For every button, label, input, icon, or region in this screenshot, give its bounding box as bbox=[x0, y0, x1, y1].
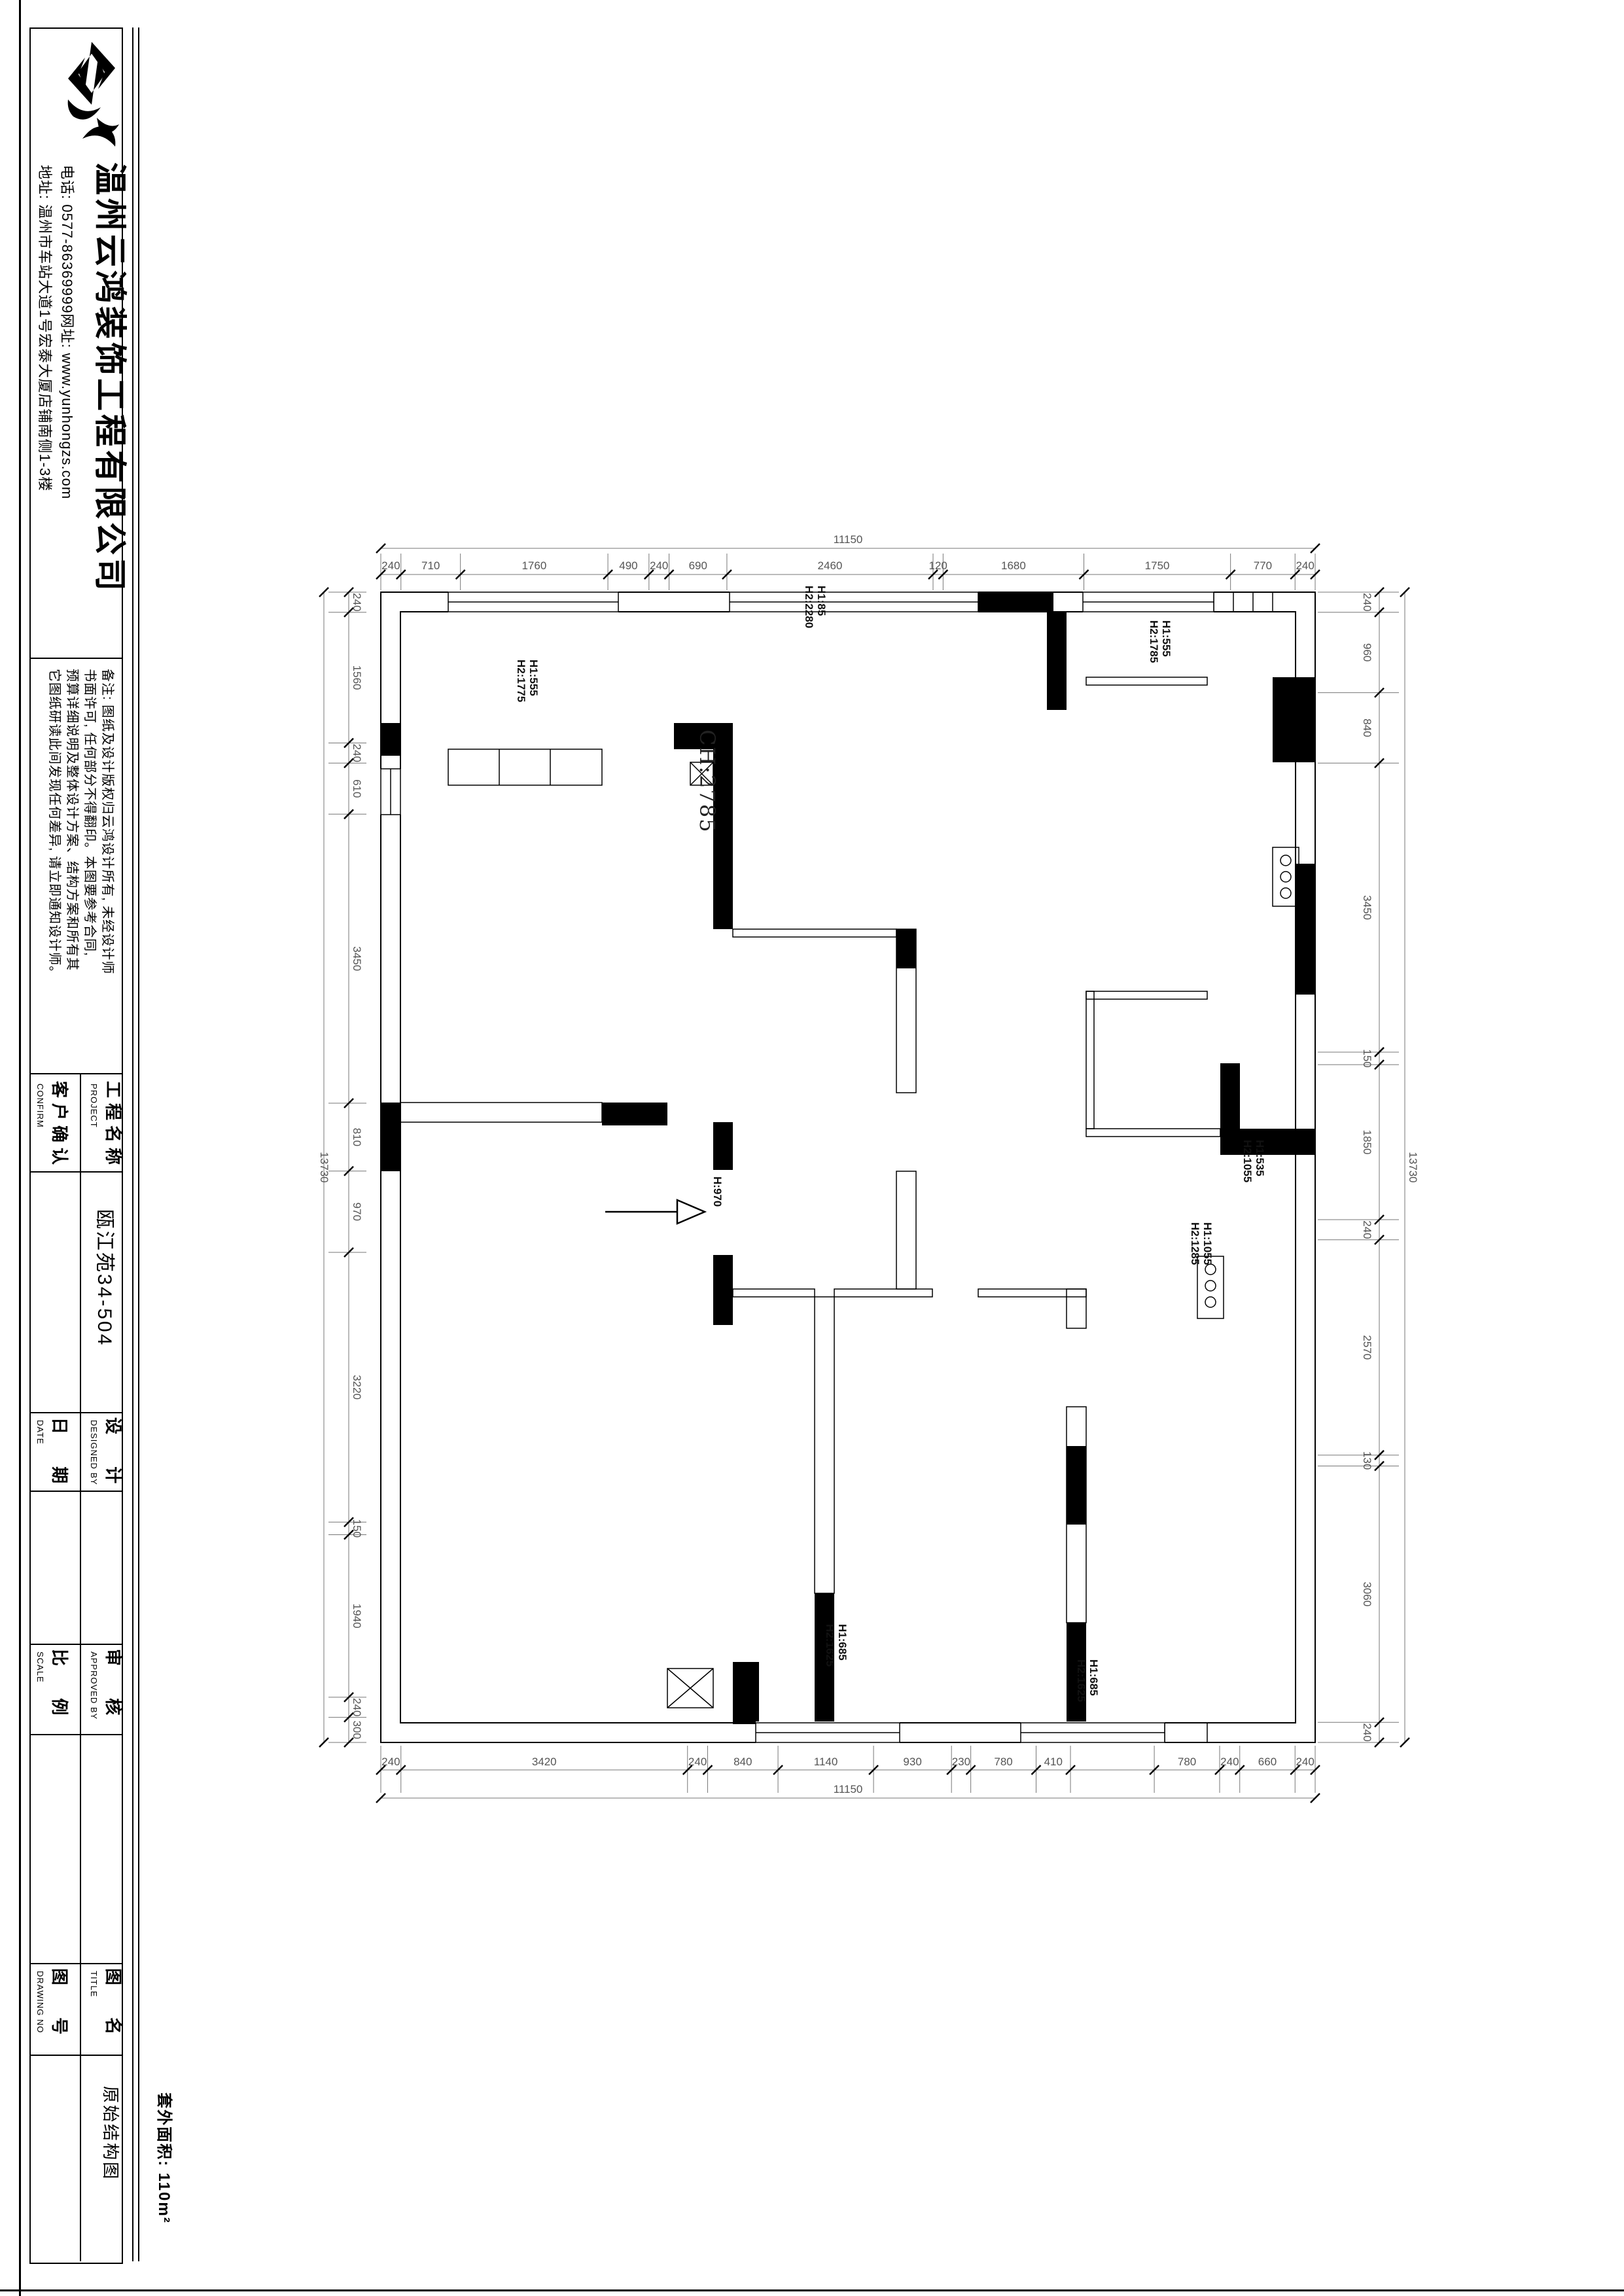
entrance-height-label: H:970 bbox=[711, 1176, 724, 1207]
scale-label-en: SCALE bbox=[36, 1651, 44, 1683]
dim-seg-bottom: 240 bbox=[688, 1756, 707, 1768]
title-block-divider bbox=[29, 1734, 123, 1735]
dim-seg-right: 1850 bbox=[1361, 1130, 1373, 1155]
notes-line-1: 备注: 图纸及设计版权归云鸿设计所有, 未经设计师 bbox=[101, 669, 114, 974]
opening-label-bottom_right: H1:685H2:1625 bbox=[1075, 1659, 1100, 1702]
entrance-arrow bbox=[605, 1200, 705, 1224]
area-note: 套外面积: 110m² bbox=[156, 2093, 171, 2224]
dim-seg-top: 2460 bbox=[818, 559, 843, 572]
drawing-title-label: 图 名 bbox=[105, 1968, 122, 2040]
dim-seg-right: 2570 bbox=[1361, 1335, 1373, 1360]
title-block-outer-rule-1 bbox=[132, 27, 133, 2261]
company-logo bbox=[59, 39, 124, 157]
dim-seg-left: 810 bbox=[351, 1128, 363, 1146]
dim-seg-left: 300 bbox=[351, 1721, 363, 1739]
dim-seg-right: 240 bbox=[1361, 1723, 1373, 1741]
dim-seg-left: 240 bbox=[351, 744, 363, 762]
ceiling-height-label: CH:2785 bbox=[695, 730, 720, 834]
dim-seg-bottom: 230 bbox=[952, 1756, 970, 1768]
project-value: 瓯江苑34-504 bbox=[94, 1209, 114, 1347]
sheet-left-border bbox=[19, 0, 21, 2296]
drawing-title-label-en: TITLE bbox=[90, 1971, 98, 1997]
dim-seg-left: 150 bbox=[351, 1519, 363, 1538]
drawing-title-value: 原始结构图 bbox=[102, 2086, 119, 2181]
dim-seg-top: 1680 bbox=[1001, 559, 1026, 572]
dim-seg-top: 690 bbox=[689, 559, 707, 572]
title-block-divider bbox=[29, 1412, 123, 1413]
dim-seg-top: 120 bbox=[928, 559, 947, 572]
notes-line-3: 预算详细说明及整体设计方案、结构方案和所有其 bbox=[65, 669, 79, 971]
dim-seg-top: 240 bbox=[1296, 559, 1314, 572]
dim-seg-right: 240 bbox=[1361, 593, 1373, 611]
dim-seg-left: 970 bbox=[351, 1203, 363, 1221]
title-block-divider bbox=[29, 2055, 123, 2056]
dim-seg-bottom: 930 bbox=[903, 1756, 921, 1768]
date-label-en: DATE bbox=[36, 1420, 44, 1445]
company-address: 地址: 温州市车站大道1号宏泰大厦店铺南侧1-3楼 bbox=[37, 165, 52, 491]
dim-seg-bottom: 1140 bbox=[814, 1756, 838, 1768]
dim-seg-right: 840 bbox=[1361, 718, 1373, 737]
approved-by-label-en: APPROVED BY bbox=[90, 1651, 98, 1720]
dim-seg-top: 240 bbox=[381, 559, 400, 572]
company-phone-web: 电话: 0577-86369999网址: www.yunhongzs.com bbox=[60, 165, 74, 499]
dim-seg-top: 490 bbox=[619, 559, 637, 572]
scale-label: 比 例 bbox=[51, 1649, 68, 1720]
dim-seg-right: 3450 bbox=[1361, 895, 1373, 920]
dim-total-right: 13730 bbox=[1407, 1152, 1419, 1182]
floor-plan: 1115024071017604902406902460120168017507… bbox=[308, 510, 1433, 1826]
fixture-radiator-lower bbox=[1197, 1256, 1224, 1318]
opening-label-top_center: H1:85H2:2280 bbox=[803, 586, 828, 628]
opening-label-left_window: H1:555H2:1775 bbox=[515, 660, 540, 702]
project-label-en: PROJECT bbox=[90, 1084, 98, 1128]
sheet-bottom-border bbox=[0, 2289, 1624, 2291]
dim-seg-top: 240 bbox=[650, 559, 668, 572]
notes-line-4: 它图纸研读此间发现任何差异, 请立即通知设计师。 bbox=[48, 669, 61, 980]
dim-seg-left: 610 bbox=[351, 779, 363, 798]
dim-seg-left: 1560 bbox=[351, 665, 363, 690]
dim-seg-left: 240 bbox=[351, 1698, 363, 1716]
interior-walls bbox=[400, 592, 1273, 1742]
dim-seg-left: 1940 bbox=[351, 1604, 363, 1629]
title-block-divider bbox=[29, 658, 123, 659]
dim-seg-bottom: 240 bbox=[381, 1756, 400, 1768]
confirm-label-en: CONFIRM bbox=[36, 1084, 44, 1128]
dim-seg-top: 710 bbox=[421, 559, 440, 572]
approved-by-label: 审 核 bbox=[105, 1649, 122, 1720]
dim-seg-right: 3060 bbox=[1361, 1581, 1373, 1606]
dim-seg-top: 770 bbox=[1254, 559, 1272, 572]
dim-total-top: 11150 bbox=[834, 533, 863, 546]
title-block-divider bbox=[29, 1963, 123, 1964]
dim-seg-right: 240 bbox=[1361, 1220, 1373, 1239]
date-label: 日 期 bbox=[51, 1417, 68, 1489]
opening-label-right_lower: H1:1055H2:1285 bbox=[1189, 1222, 1214, 1265]
dim-total-left: 13730 bbox=[318, 1152, 330, 1182]
dim-seg-bottom: 840 bbox=[733, 1756, 752, 1768]
dim-seg-bottom: 240 bbox=[1220, 1756, 1239, 1768]
dim-seg-right: 130 bbox=[1361, 1451, 1373, 1470]
company-name: 温州云鸿装饰工程有限公司 bbox=[94, 162, 126, 594]
dim-seg-bottom: 780 bbox=[1178, 1756, 1196, 1768]
dim-seg-bottom: 660 bbox=[1258, 1756, 1277, 1768]
dim-seg-top: 1760 bbox=[521, 559, 546, 572]
dim-seg-bottom: 240 bbox=[1296, 1756, 1314, 1768]
notes-line-2: 书面许可, 任何部分不得翻印。本图要参考合同, bbox=[83, 669, 96, 957]
dim-seg-bottom: 3420 bbox=[532, 1756, 557, 1768]
designed-by-label: 设 计 bbox=[105, 1417, 122, 1489]
dim-seg-left: 3450 bbox=[351, 946, 363, 971]
title-block-outer-rule-2 bbox=[138, 27, 139, 2261]
dim-seg-bottom: 410 bbox=[1044, 1756, 1063, 1768]
title-block-divider bbox=[29, 1491, 123, 1492]
confirm-label: 客户确认 bbox=[51, 1081, 68, 1170]
dim-seg-right: 150 bbox=[1361, 1049, 1373, 1067]
structural-walls bbox=[381, 592, 1315, 1724]
drawing-no-label-en: DRAWING NO bbox=[36, 1971, 44, 2033]
dim-total-bottom: 11150 bbox=[834, 1783, 863, 1795]
outer-walls bbox=[381, 592, 1315, 1742]
dim-seg-left: 240 bbox=[351, 593, 363, 611]
dim-seg-top: 1750 bbox=[1145, 559, 1170, 572]
designed-by-label-en: DESIGNED BY bbox=[90, 1420, 98, 1485]
sheet: { "sheet": { "company": { "name": "温州云鸿装… bbox=[0, 0, 1624, 2296]
project-label: 工程名称 bbox=[105, 1081, 122, 1170]
title-block-divider bbox=[29, 1171, 123, 1173]
dim-seg-right: 960 bbox=[1361, 643, 1373, 662]
dim-seg-bottom: 780 bbox=[994, 1756, 1012, 1768]
opening-label-bottom_left: H1:685H2:1625 bbox=[824, 1624, 849, 1667]
dim-seg-left: 3220 bbox=[351, 1375, 363, 1400]
drawing-no-label: 图 号 bbox=[51, 1968, 68, 2040]
opening-label-right_upper: H1:535H2:1055 bbox=[1241, 1140, 1266, 1182]
title-block-divider bbox=[29, 1073, 123, 1074]
title-block-column-divider bbox=[80, 1073, 81, 2261]
title-block-divider bbox=[29, 1644, 123, 1645]
opening-label-top_right: H1:555H2:1785 bbox=[1148, 620, 1173, 663]
